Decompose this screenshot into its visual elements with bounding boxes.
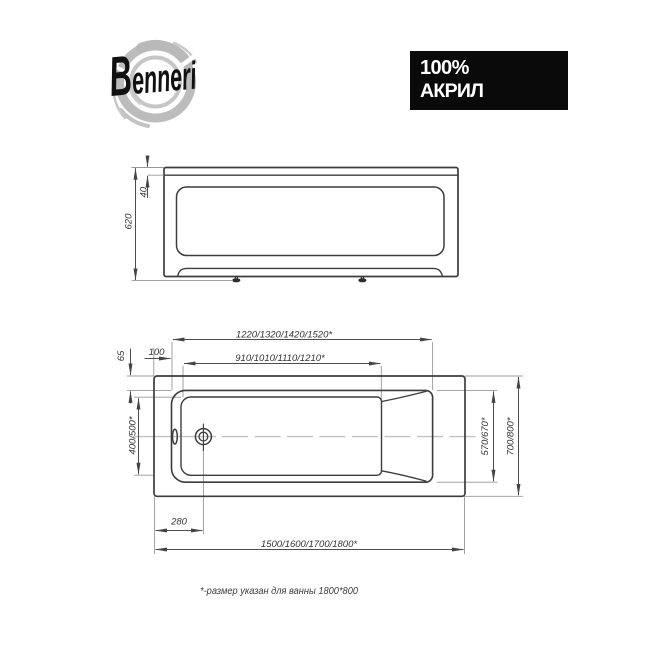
svg-text:65: 65 (116, 350, 127, 361)
svg-text:280: 280 (170, 517, 188, 528)
svg-text:100: 100 (149, 347, 166, 358)
svg-text:700/800*: 700/800* (506, 417, 517, 455)
svg-text:570/670*: 570/670* (480, 417, 491, 455)
svg-text:910/1010/1110/1210*: 910/1010/1110/1210* (235, 353, 325, 364)
svg-text:*-размер указан для ванны 1800: *-размер указан для ванны 1800*800 (200, 585, 358, 597)
svg-text:1220/1320/1420/1520*: 1220/1320/1420/1520* (236, 330, 332, 341)
svg-text:1500/1600/1700/1800*: 1500/1600/1700/1800* (261, 539, 357, 550)
svg-text:620: 620 (124, 213, 135, 230)
svg-text:400/500*: 400/500* (128, 416, 139, 454)
svg-text:40: 40 (139, 186, 150, 197)
